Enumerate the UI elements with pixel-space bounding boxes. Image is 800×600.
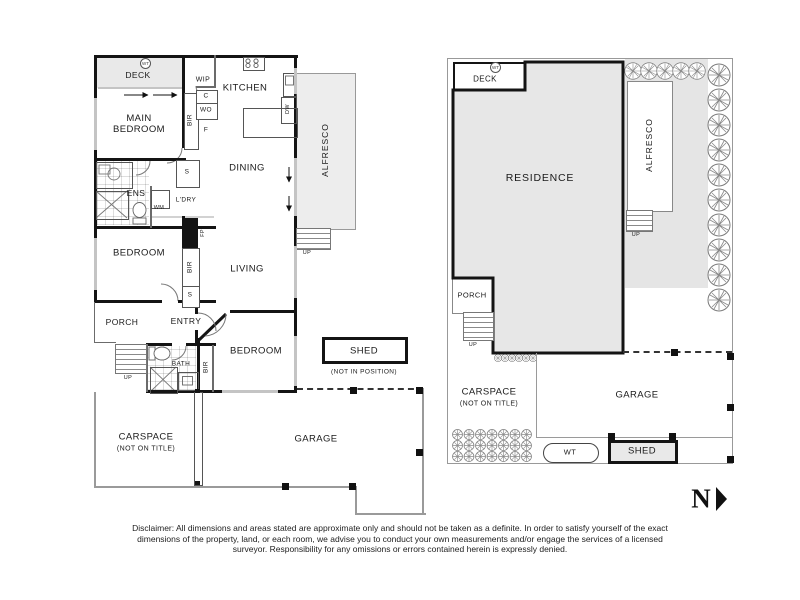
label-fridge: F — [204, 127, 208, 134]
window-marker — [294, 336, 297, 386]
room-label-alfresco: ALFRESCO — [644, 118, 654, 172]
label-shed-note: (NOT IN POSITION) — [331, 369, 397, 376]
shower-box — [96, 191, 129, 220]
label-up: UP — [469, 342, 477, 348]
room-label-carspace: CARSPACE — [119, 432, 174, 443]
room-label-garage: GARAGE — [615, 390, 658, 401]
boundary-line — [94, 392, 96, 488]
garage-dashed-line — [297, 388, 424, 390]
divider-tick — [195, 481, 200, 485]
label-up: UP — [632, 232, 640, 238]
wall-thin — [214, 55, 216, 88]
room-label-deck: DECK — [125, 70, 150, 80]
wall-thin — [212, 345, 214, 392]
divider-tick — [195, 389, 200, 393]
tree-icon — [708, 64, 730, 86]
tree-icon — [708, 289, 730, 311]
window-marker — [98, 87, 182, 89]
post-marker — [416, 387, 423, 394]
shower-box — [150, 367, 178, 394]
label-up: UP — [124, 375, 132, 381]
label-store: S — [188, 292, 193, 299]
tree-icon — [641, 63, 658, 80]
window-marker — [294, 158, 297, 216]
window-marker — [94, 238, 97, 290]
water-tank-icon: WT — [490, 62, 501, 73]
north-label: N — [691, 484, 711, 515]
wall-segment — [94, 158, 186, 161]
vanity — [96, 162, 133, 189]
room-label-main-bedroom: MAIN BEDROOM — [100, 113, 178, 135]
tree-icon — [708, 264, 730, 286]
wall-thin — [196, 86, 214, 88]
room-label-deck: DECK — [473, 75, 497, 84]
tree-icon — [657, 63, 674, 80]
label-wall-oven: WO — [200, 107, 212, 114]
window-marker — [294, 246, 297, 298]
wall-thin — [94, 302, 95, 343]
room-label-bedroom: BEDROOM — [113, 248, 165, 259]
post-marker — [669, 433, 676, 440]
room-label-wip: WIP — [196, 77, 210, 84]
room-label-laundry: L'DRY — [176, 197, 196, 204]
tree-icon — [689, 63, 706, 80]
room-label-porch: PORCH — [457, 291, 486, 300]
room-label-ens: ENS — [127, 188, 146, 198]
post-marker — [671, 349, 678, 356]
room-label-kitchen: KITCHEN — [223, 83, 268, 94]
post-marker — [727, 353, 734, 360]
room-label-dining: DINING — [229, 163, 265, 174]
residence-outline — [453, 62, 623, 353]
post-marker — [727, 404, 734, 411]
room-label-bedroom: BEDROOM — [230, 346, 282, 357]
label-bir: BIR — [187, 261, 194, 273]
window-marker — [222, 390, 278, 393]
label-dw: DW — [285, 104, 291, 114]
boundary-line — [355, 513, 426, 515]
floorplan-canvas: WT WT DECK MAIN BEDROOM WIP KITCHEN C WO… — [0, 0, 800, 600]
wall-thin — [94, 342, 116, 343]
wall-segment — [195, 330, 198, 344]
label-bir: BIR — [203, 361, 210, 373]
shrub-icon — [501, 354, 508, 361]
shrub-icon — [515, 354, 522, 361]
shrub-row — [494, 354, 536, 361]
shrub-patch — [453, 430, 532, 462]
boundary-line — [94, 486, 357, 488]
wall-segment — [94, 55, 298, 58]
shrub-icon — [494, 354, 501, 361]
disclaimer-text: Disclaimer: All dimensions and areas sta… — [123, 523, 678, 555]
tree-icon — [708, 89, 730, 111]
boundary-line — [355, 486, 357, 515]
stairs-alfresco-left — [296, 228, 331, 250]
label-shed: SHED — [628, 446, 656, 457]
room-label-porch: PORCH — [106, 317, 139, 327]
stairs-porch-left — [115, 344, 147, 374]
room-label-residence: RESIDENCE — [506, 172, 574, 184]
room-label-alfresco: ALFRESCO — [320, 123, 330, 177]
post-marker — [349, 483, 356, 490]
stairs-alfresco-right — [626, 210, 653, 232]
post-marker — [608, 433, 615, 440]
tree-icon — [673, 63, 690, 80]
room-label-garage: GARAGE — [294, 434, 337, 445]
room-label-bath: BATH — [172, 361, 190, 368]
stairs-porch-right — [463, 312, 494, 341]
tree-icon — [708, 189, 730, 211]
tree-icon — [708, 139, 730, 161]
trees-right-column — [708, 64, 730, 311]
tree-icon — [708, 239, 730, 261]
post-marker — [282, 483, 289, 490]
tree-icon — [708, 164, 730, 186]
tree-icon — [708, 214, 730, 236]
post-marker — [416, 449, 423, 456]
window-marker — [294, 68, 297, 94]
carspace-divider — [194, 392, 203, 486]
wall-segment — [94, 300, 162, 303]
tree-icon — [625, 63, 642, 80]
label-up: UP — [303, 250, 311, 256]
label-carspace-note: (NOT ON TITLE) — [460, 401, 518, 408]
label-store: S — [185, 169, 190, 176]
window-marker — [94, 98, 97, 150]
room-label-living: LIVING — [230, 264, 264, 275]
cooktop-box — [243, 57, 265, 71]
label-cupboard: C — [203, 93, 208, 100]
trees-top-row — [625, 63, 706, 80]
boundary-line — [537, 437, 732, 438]
fireplace — [182, 218, 198, 248]
label-carspace-note: (NOT ON TITLE) — [117, 446, 175, 453]
tree-icon — [708, 114, 730, 136]
label-water-tank: WT — [564, 448, 576, 457]
shrub-icon — [508, 354, 515, 361]
room-label-entry: ENTRY — [171, 316, 202, 326]
label-bir: BIR — [187, 114, 194, 126]
shrub-icon — [522, 354, 529, 361]
boundary-line — [536, 353, 537, 438]
water-tank-icon: WT — [140, 58, 151, 69]
wall-segment — [230, 310, 297, 313]
post-marker — [727, 456, 734, 463]
room-label-carspace: CARSPACE — [462, 387, 517, 398]
post-marker — [350, 387, 357, 394]
wall-segment — [146, 343, 172, 346]
label-shed: SHED — [350, 346, 378, 357]
label-wm: WM — [154, 205, 165, 211]
north-arrow-icon — [716, 487, 727, 511]
label-fp: FP — [200, 229, 206, 237]
